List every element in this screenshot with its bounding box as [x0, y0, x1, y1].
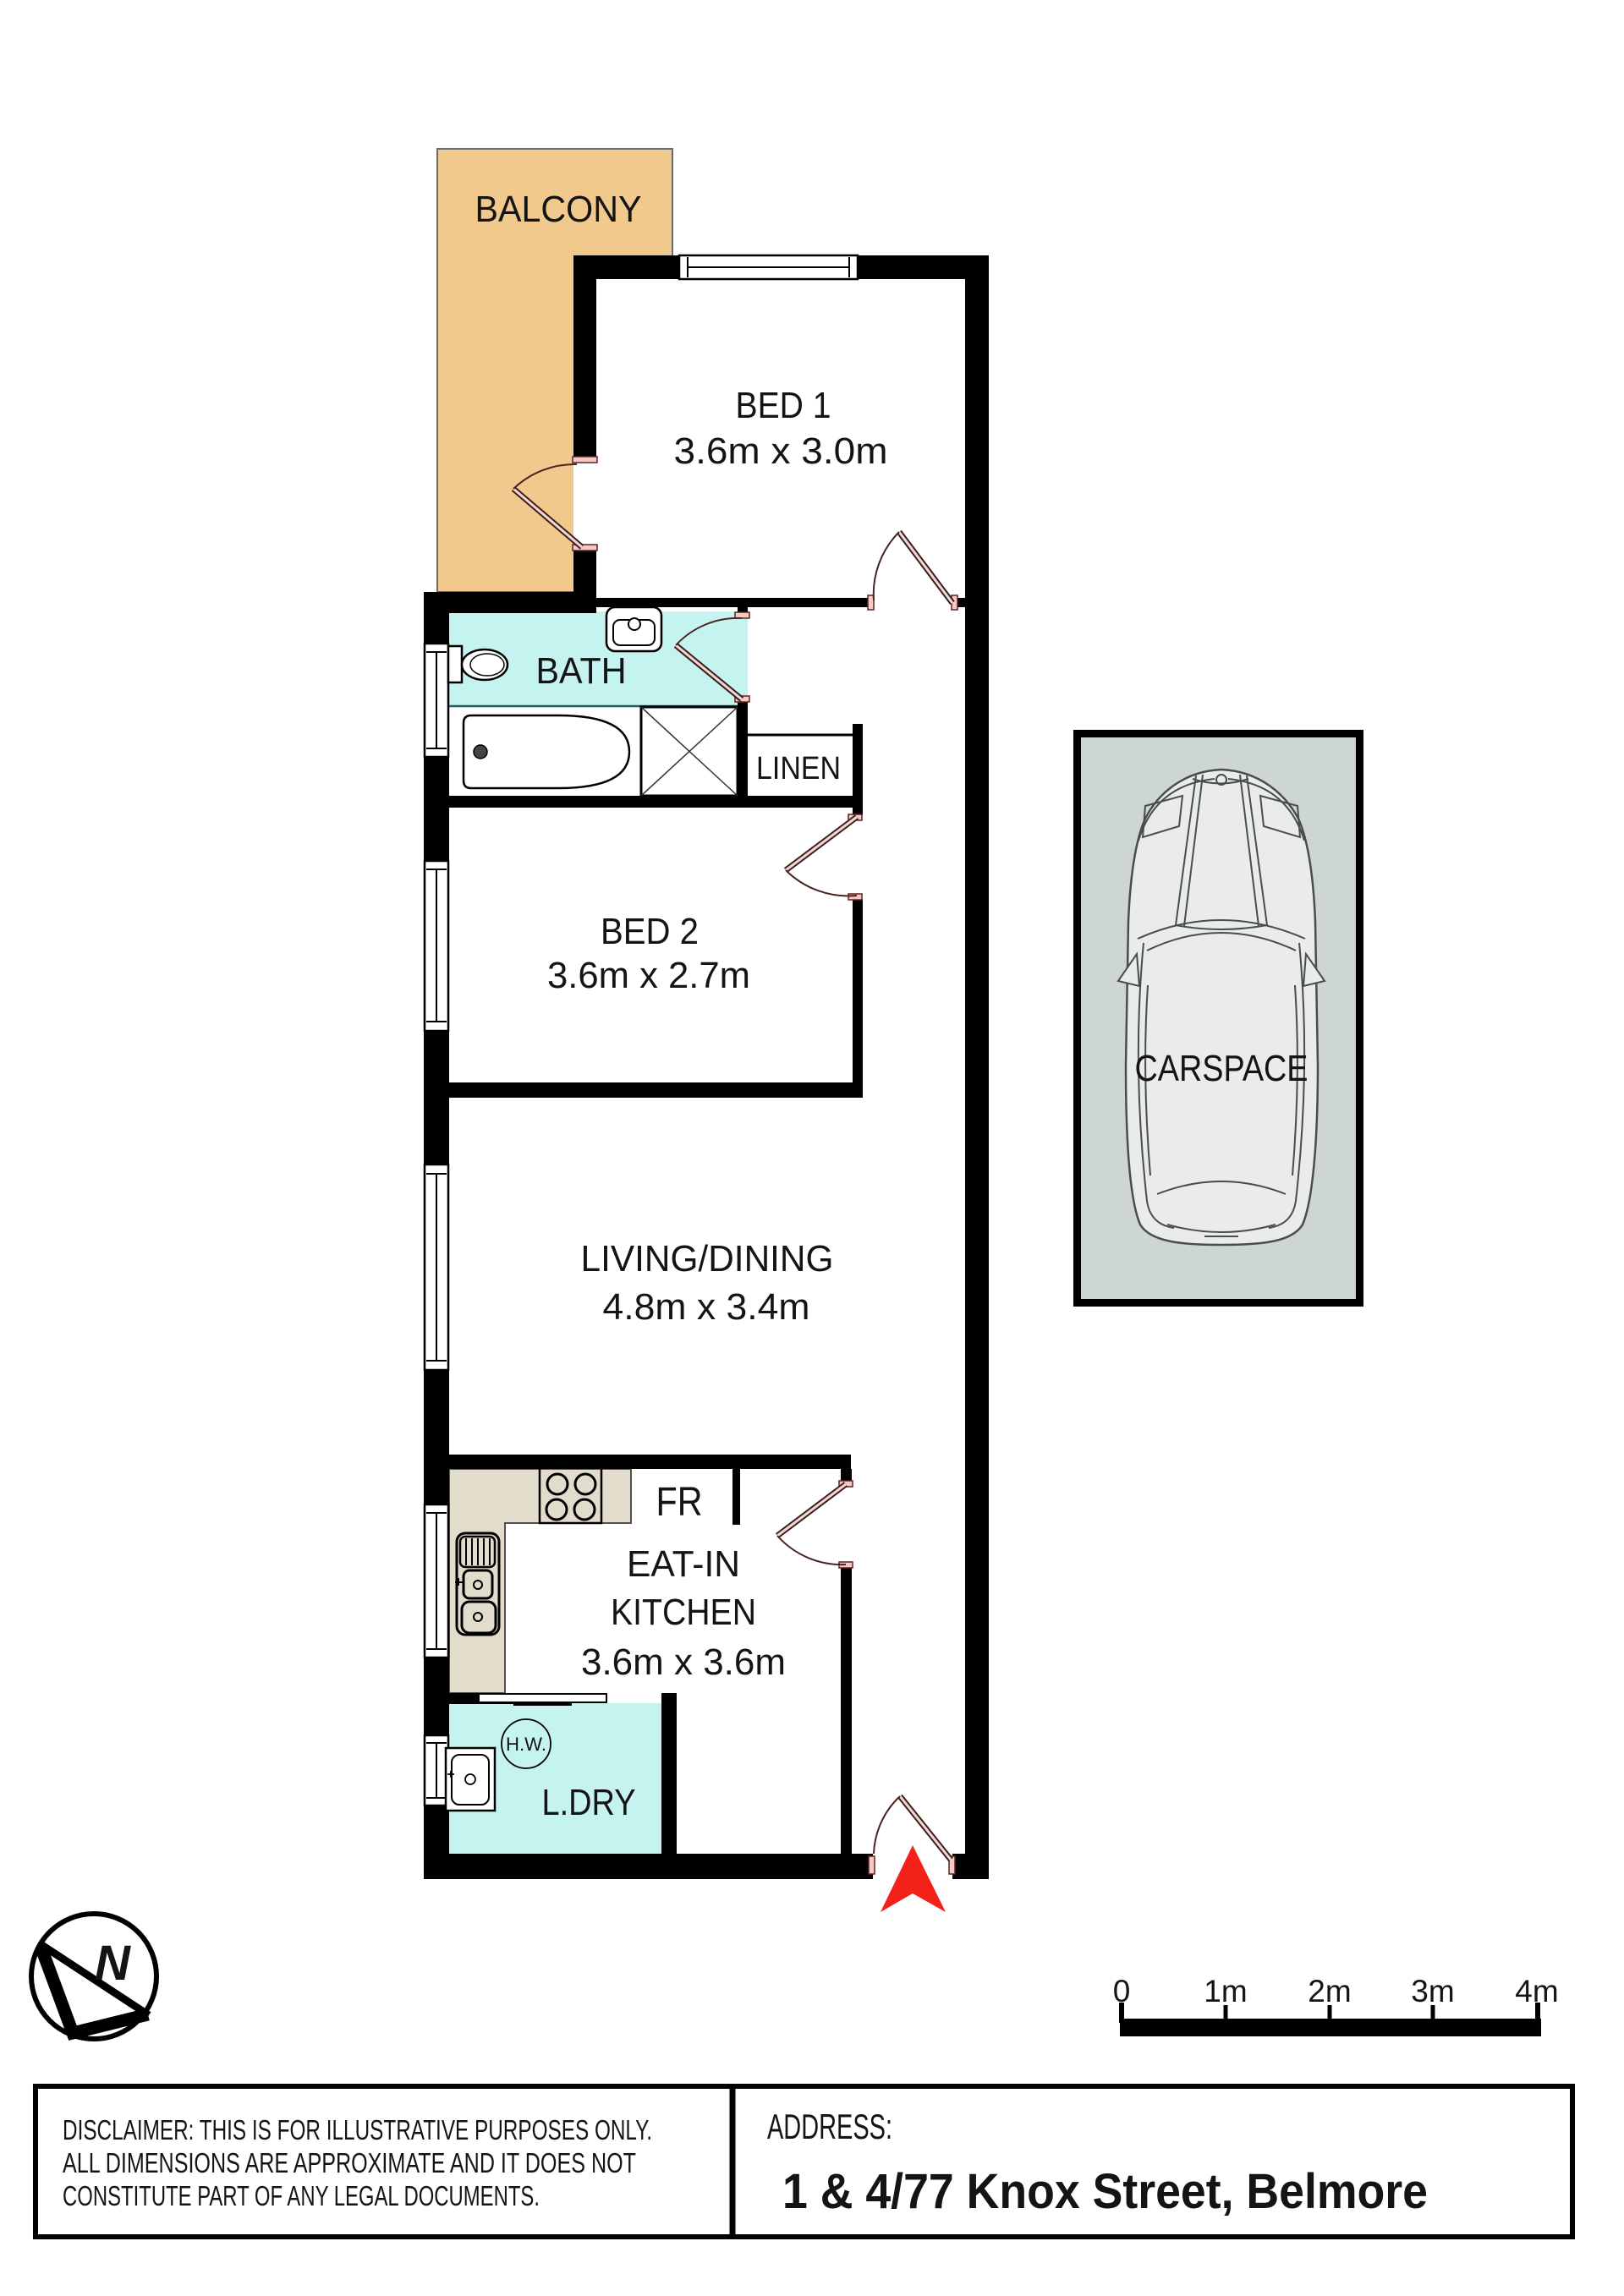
- svg-text:BED 2: BED 2: [601, 911, 699, 952]
- svg-text:H.W.: H.W.: [506, 1734, 546, 1755]
- svg-text:BALCONY: BALCONY: [475, 189, 642, 230]
- svg-text:3.6m x 3.6m: 3.6m x 3.6m: [581, 1641, 786, 1683]
- svg-text:2m: 2m: [1308, 1974, 1351, 2008]
- svg-text:1m: 1m: [1204, 1974, 1247, 2008]
- svg-text:LIVING/DINING: LIVING/DINING: [581, 1238, 834, 1280]
- svg-text:BED 1: BED 1: [736, 385, 831, 426]
- svg-text:N: N: [95, 1936, 131, 1991]
- svg-text:3.6m x 3.0m: 3.6m x 3.0m: [674, 430, 888, 472]
- svg-text:KITCHEN: KITCHEN: [611, 1592, 756, 1633]
- svg-text:DISCLAIMER: THIS IS FOR ILLUST: DISCLAIMER: THIS IS FOR ILLUSTRATIVE PUR…: [63, 2114, 652, 2145]
- svg-text:1 & 4/77 Knox Street, Belmore: 1 & 4/77 Knox Street, Belmore: [782, 2164, 1428, 2219]
- svg-text:3m: 3m: [1411, 1974, 1454, 2008]
- svg-text:CONSTITUTE PART OF ANY LEGAL D: CONSTITUTE PART OF ANY LEGAL DOCUMENTS.: [63, 2180, 540, 2211]
- svg-text:0: 0: [1113, 1974, 1131, 2008]
- svg-text:ALL DIMENSIONS ARE APPROXIMATE: ALL DIMENSIONS ARE APPROXIMATE AND IT DO…: [63, 2147, 636, 2178]
- svg-text:ADDRESS:: ADDRESS:: [767, 2107, 892, 2146]
- svg-text:CARSPACE: CARSPACE: [1135, 1048, 1309, 1089]
- svg-text:EAT-IN: EAT-IN: [627, 1543, 740, 1585]
- svg-text:L.DRY: L.DRY: [542, 1782, 636, 1823]
- svg-text:4.8m x 3.4m: 4.8m x 3.4m: [603, 1286, 810, 1328]
- svg-text:BATH: BATH: [536, 650, 627, 692]
- svg-text:3.6m x 2.7m: 3.6m x 2.7m: [547, 955, 750, 996]
- svg-text:LINEN: LINEN: [756, 751, 841, 786]
- svg-text:4m: 4m: [1515, 1974, 1558, 2008]
- svg-text:FR: FR: [656, 1480, 703, 1525]
